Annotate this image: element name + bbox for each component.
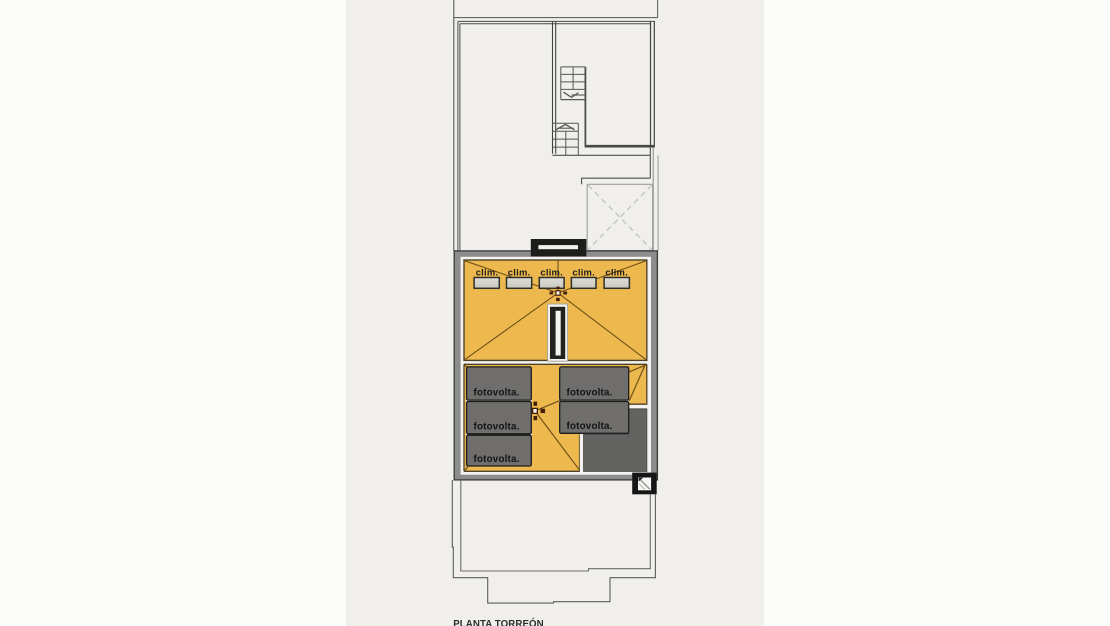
svg-text:clim.: clim.	[605, 267, 628, 278]
svg-text:fotovolta.: fotovolta.	[567, 421, 613, 432]
svg-text:clim.: clim.	[572, 267, 595, 278]
svg-text:PLANTA TORREÓN: PLANTA TORREÓN	[453, 618, 544, 626]
svg-text:fotovolta.: fotovolta.	[474, 388, 520, 399]
svg-text:fotovolta.: fotovolta.	[474, 421, 520, 432]
svg-text:clim.: clim.	[476, 267, 499, 278]
svg-text:clim.: clim.	[508, 267, 531, 278]
svg-text:fotovolta.: fotovolta.	[474, 454, 520, 465]
svg-text:clim.: clim.	[540, 267, 563, 278]
svg-text:fotovolta.: fotovolta.	[567, 388, 613, 399]
